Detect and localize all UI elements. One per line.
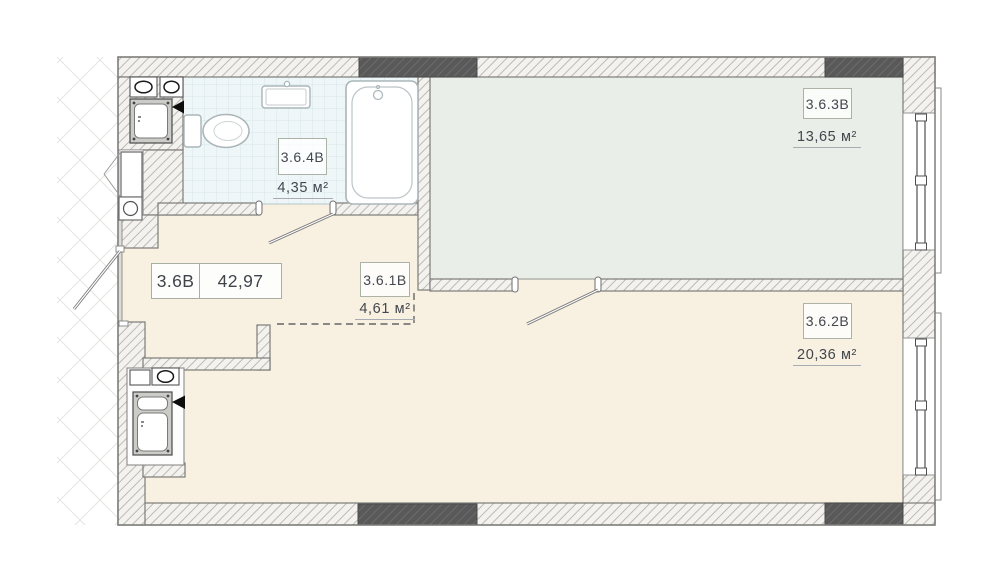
washing-machine-upper (130, 99, 172, 143)
wall-bedroom-south-east (598, 279, 903, 291)
wall-bedroom-west (418, 77, 430, 290)
bathtub (346, 81, 418, 204)
room-code-living: 3.6.2B (803, 303, 852, 339)
apartment-code: 3.6B (152, 264, 199, 298)
washing-machine-lower (133, 392, 172, 455)
room-code-hallway: 3.6.1B (360, 262, 410, 297)
entry-door-leaf-closed (121, 152, 142, 197)
room-code-bedroom: 3.6.3B (803, 88, 852, 119)
meter-box (130, 370, 150, 385)
wall-bedroom-south-west (430, 279, 515, 291)
entry-door-handle (124, 202, 138, 216)
room-area-hallway: 4,61 м² (335, 301, 435, 320)
room-code-bathroom: 3.6.4B (278, 138, 327, 175)
room-area-bedroom: 13,65 м² (777, 129, 877, 148)
floor-plan-drawing (0, 0, 1000, 578)
room-area-living: 20,36 м² (777, 347, 877, 366)
wall-bathroom-south-west (158, 203, 260, 215)
toilet (184, 115, 249, 148)
wall-bottom (118, 503, 935, 525)
room-area-bathroom: 4,35 м² (253, 180, 353, 199)
apartment-total-label: 3.6B 42,97 (151, 263, 282, 299)
apartment-total-area: 42,97 (199, 264, 281, 298)
wall-top (118, 57, 935, 77)
shaft-boxes-upper (130, 77, 183, 97)
floor-plan-page: 3.6B 42,97 3.6.4B 4,35 м² 3.6.3B 13,65 м… (0, 0, 1000, 578)
utility-shaft-lower (127, 368, 185, 465)
sink (262, 81, 310, 108)
wall-bathroom-south-east (332, 203, 418, 215)
vent-symbol (158, 371, 174, 383)
